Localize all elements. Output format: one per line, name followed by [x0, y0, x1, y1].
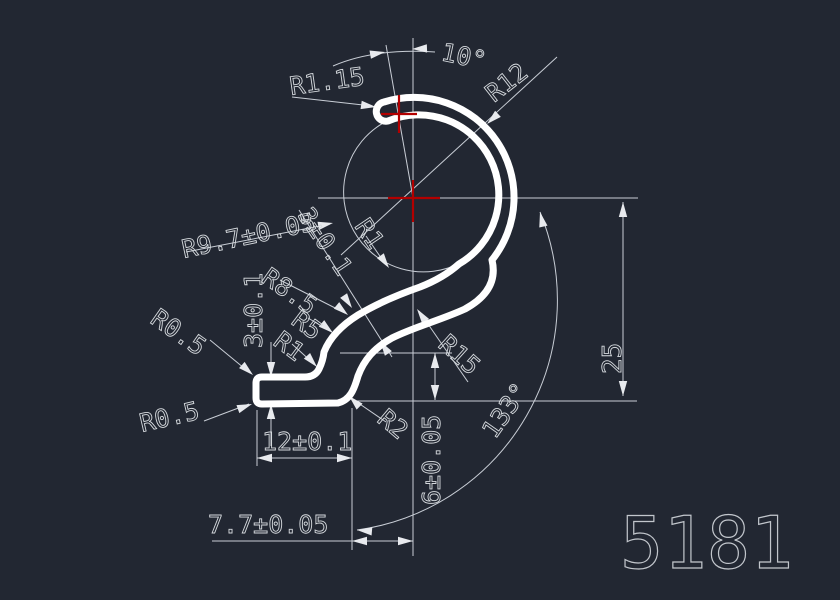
label-angle-133: 133°	[476, 377, 534, 443]
label-dim-25: 25	[598, 343, 628, 374]
cad-viewport[interactable]: R1.15 10° R12 R9.7±0.05 3±0.1 R8.5 R5 R1…	[0, 0, 840, 600]
label-r1.15: R1.15	[288, 62, 367, 101]
label-r1-ring: R1	[349, 213, 390, 254]
label-r0.5-bottom: R0.5	[137, 396, 202, 438]
label-dim-7.7: 7.7±0.05	[208, 510, 328, 539]
cad-drawing: R1.15 10° R12 R9.7±0.05 3±0.1 R8.5 R5 R1…	[0, 0, 840, 600]
dimension-texts: R1.15 10° R12 R9.7±0.05 3±0.1 R8.5 R5 R1…	[137, 38, 628, 539]
label-dim-12: 12±0.1	[262, 427, 352, 456]
label-wall-thickness: 3±0.1	[292, 202, 358, 281]
label-foot-thickness: 3±0.1	[239, 273, 268, 348]
label-dim-6: 6±0.05	[417, 415, 446, 505]
part-number: 5181	[620, 501, 793, 585]
label-angle-10: 10°	[439, 38, 489, 76]
label-r15: R15	[433, 329, 486, 381]
label-r2: R2	[372, 403, 414, 445]
label-r12: R12	[480, 57, 533, 108]
label-r0.5-top: R0.5	[146, 303, 212, 361]
